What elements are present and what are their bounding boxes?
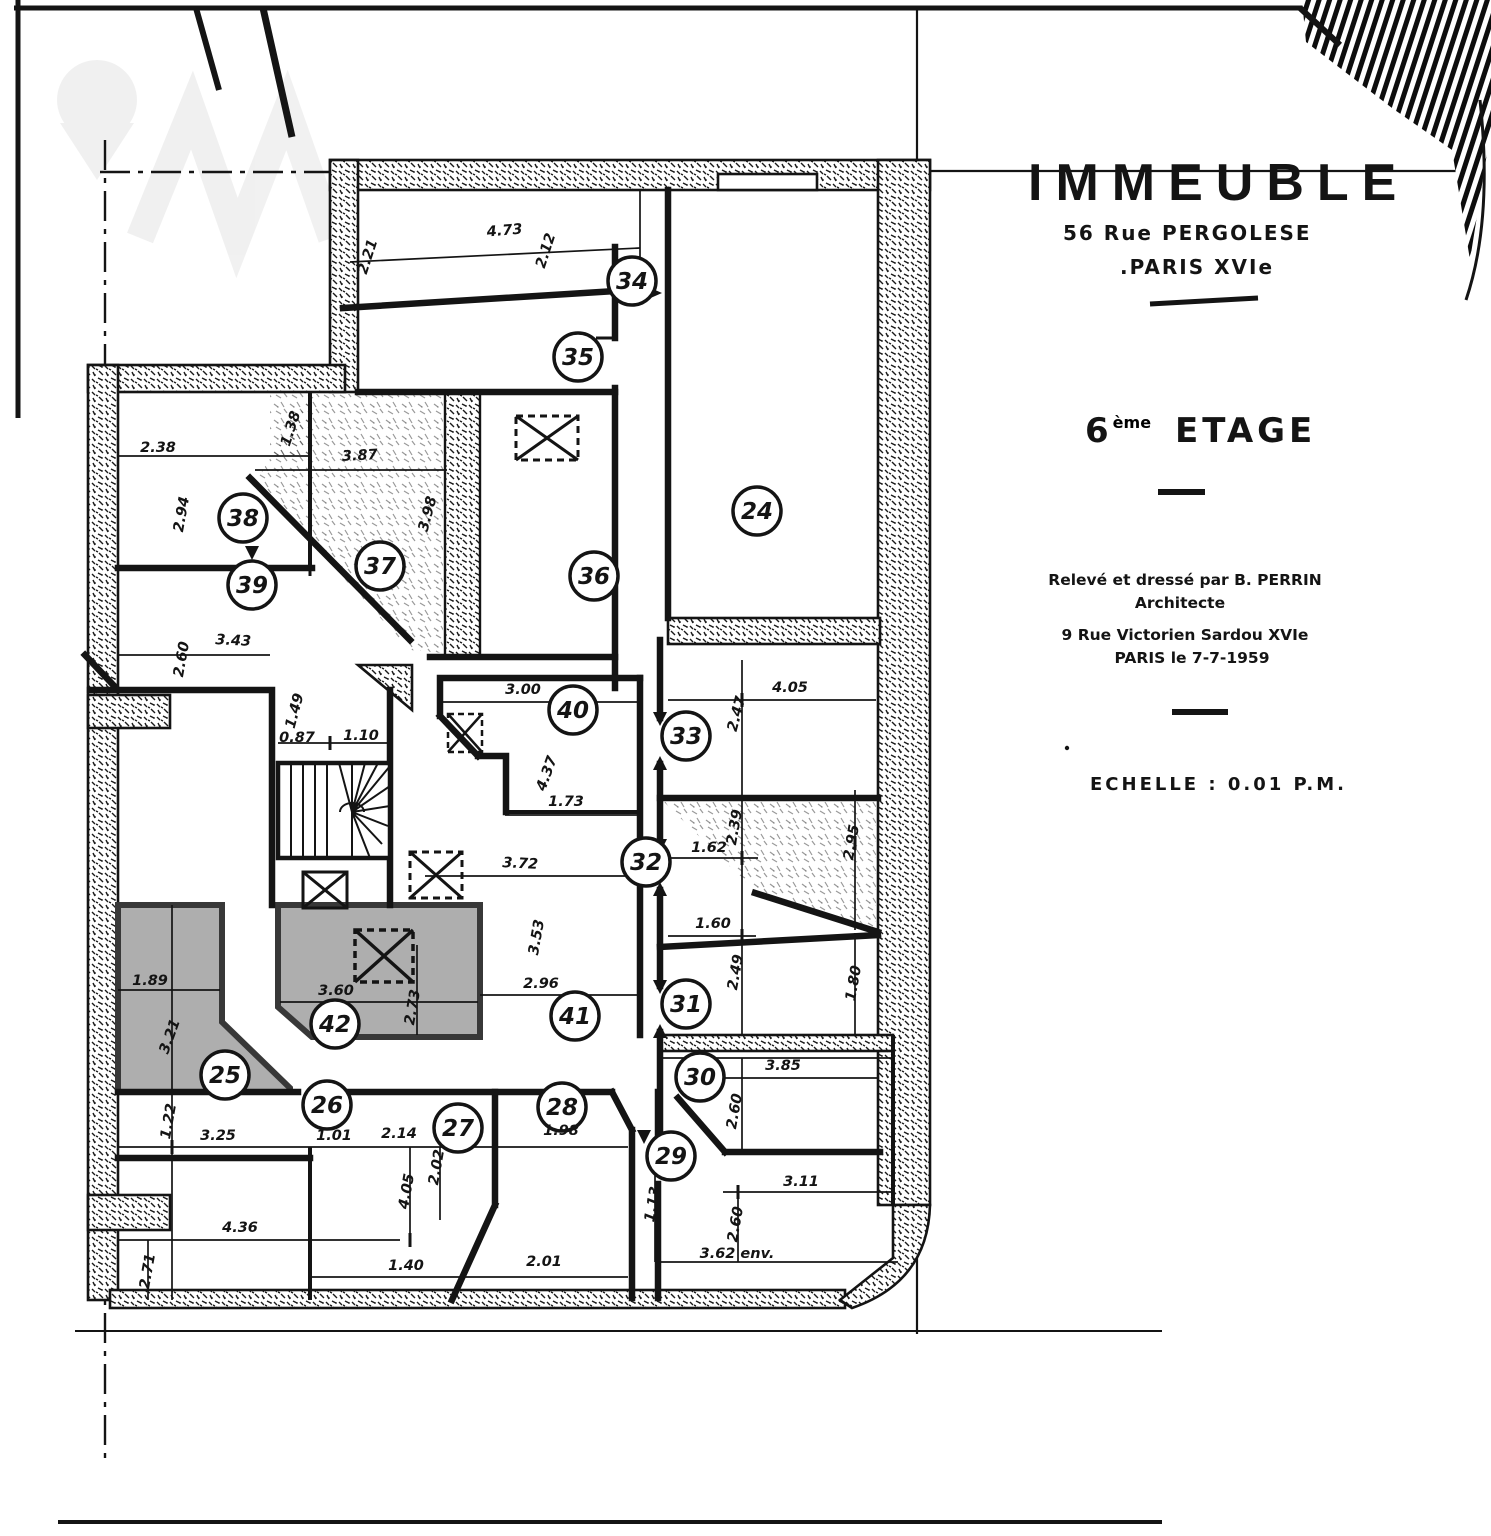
dimension-label: 2.94 bbox=[171, 495, 193, 533]
dimension-label: 1.22 bbox=[158, 1102, 180, 1140]
dimension-label: 3.85 bbox=[765, 1058, 801, 1074]
dimension-label: 3.87 bbox=[342, 447, 379, 465]
room-number: 35 bbox=[562, 345, 594, 371]
dimension-label: 2.60 bbox=[171, 640, 193, 678]
room-number: 39 bbox=[236, 573, 268, 599]
room-marker-39: 39 bbox=[228, 561, 276, 609]
dimension-label: 4.37 bbox=[533, 753, 561, 794]
address-line-2: .PARIS XVIe bbox=[1120, 255, 1274, 279]
room-marker-35: 35 bbox=[554, 333, 602, 381]
dimension-label: 2.60 bbox=[725, 1205, 747, 1243]
door-arrow bbox=[653, 1024, 667, 1038]
underline bbox=[1150, 298, 1258, 304]
dimension-label: 4.36 bbox=[221, 1220, 258, 1236]
dimension-label: 1.98 bbox=[543, 1123, 579, 1139]
room-number: 33 bbox=[670, 724, 702, 750]
room-marker-27: 27 bbox=[434, 1104, 482, 1152]
scan-artifact-top-right bbox=[1300, 0, 1491, 300]
room-number: 42 bbox=[318, 1012, 351, 1038]
room-number: 25 bbox=[209, 1063, 241, 1089]
dimension-label: 4.05 bbox=[396, 1172, 418, 1211]
room-marker-42: 42 bbox=[311, 1000, 359, 1048]
room-marker-24: 24 bbox=[733, 487, 781, 535]
dimension-label: 3.60 bbox=[318, 983, 354, 999]
ink-dot bbox=[1065, 746, 1069, 750]
room-marker-29: 29 bbox=[647, 1132, 695, 1180]
dimension-label: 2.12 bbox=[533, 231, 559, 270]
dimension-label: 3.11 bbox=[783, 1174, 819, 1190]
room-marker-25: 25 bbox=[201, 1051, 249, 1099]
dimension-label: 1.62 bbox=[691, 840, 727, 856]
dimension-label: 2.96 bbox=[523, 976, 559, 992]
room-number: 40 bbox=[556, 698, 589, 724]
room-marker-26: 26 bbox=[303, 1081, 351, 1129]
room-number: 31 bbox=[670, 992, 702, 1018]
room-number: 38 bbox=[227, 506, 259, 532]
dimension-label: 3.62 env. bbox=[700, 1246, 775, 1262]
dimension-label: 2.14 bbox=[381, 1126, 417, 1142]
dimension-label: 2.49 bbox=[725, 953, 747, 991]
dimension-label: 1.40 bbox=[388, 1258, 424, 1274]
room-number: 28 bbox=[546, 1095, 578, 1121]
dimension-label: 1.49 bbox=[283, 692, 308, 731]
credit-line-3: 9 Rue Victorien Sardou XVIe bbox=[1062, 626, 1309, 644]
door-arrow bbox=[637, 1130, 651, 1144]
dimension-label: 2.02 bbox=[426, 1148, 448, 1186]
shaft-box bbox=[410, 852, 462, 898]
scale-label: ECHELLE : 0.01 P.M. bbox=[1090, 774, 1347, 795]
shaft-box bbox=[516, 416, 578, 460]
watermark-logo bbox=[57, 60, 332, 238]
credit-line-4: PARIS le 7-7-1959 bbox=[1115, 649, 1270, 667]
room-number: 27 bbox=[442, 1116, 474, 1142]
blueprint-sheet: 24252627282930313233343536373839404142 4… bbox=[0, 0, 1491, 1536]
room-number: 32 bbox=[630, 850, 662, 876]
room-number: 37 bbox=[364, 554, 396, 580]
dimension-label: 1.80 bbox=[843, 964, 865, 1002]
floor-plan-drawing: 24252627282930313233343536373839404142 4… bbox=[0, 0, 1491, 1536]
room-marker-33: 33 bbox=[662, 712, 710, 760]
dimension-label: 3.43 bbox=[215, 632, 252, 650]
staircase bbox=[278, 763, 390, 858]
sheet-title: IMMEUBLE bbox=[1028, 154, 1409, 212]
room-marker-31: 31 bbox=[662, 980, 710, 1028]
room-marker-38: 38 bbox=[219, 494, 267, 542]
dimension-label: 4.73 bbox=[485, 221, 523, 240]
room-number: 24 bbox=[741, 499, 773, 525]
dimension-label: 1.73 bbox=[548, 794, 584, 810]
room-number: 30 bbox=[684, 1065, 716, 1091]
dimension-label: 3.72 bbox=[502, 855, 539, 873]
dimension-label: 0.87 bbox=[279, 730, 316, 746]
room-number: 29 bbox=[655, 1144, 687, 1170]
address-line-1: 56 Rue PERGOLESE bbox=[1063, 221, 1312, 245]
dimension-label: 1.60 bbox=[695, 916, 731, 932]
dimension-label: 3.00 bbox=[505, 682, 541, 698]
dimension-label: 4.05 bbox=[771, 680, 808, 696]
floor-suffix: ème bbox=[1113, 413, 1152, 432]
dimension-label: 2.71 bbox=[137, 1252, 159, 1290]
room-marker-41: 41 bbox=[551, 992, 599, 1040]
room-marker-30: 30 bbox=[676, 1053, 724, 1101]
door-arrow bbox=[653, 756, 667, 770]
dimension-label: 1.89 bbox=[132, 973, 168, 989]
dimension-label: 2.01 bbox=[526, 1254, 562, 1270]
floor-number: 6 bbox=[1085, 411, 1113, 451]
room-marker-32: 32 bbox=[622, 838, 670, 886]
door-arrow bbox=[245, 546, 259, 560]
dimension-label: 3.25 bbox=[200, 1128, 236, 1144]
title-block: IMMEUBLE 56 Rue PERGOLESE .PARIS XVIe 6è… bbox=[1028, 154, 1409, 795]
dimension-label: 1.01 bbox=[316, 1128, 352, 1144]
room-marker-34: 34 bbox=[608, 257, 656, 305]
room-marker-37: 37 bbox=[356, 542, 404, 590]
dimension-label: 2.38 bbox=[140, 440, 176, 456]
dimension-label: 1.10 bbox=[343, 728, 379, 744]
credit-line-2: Architecte bbox=[1135, 594, 1225, 612]
floor-word: ETAGE bbox=[1175, 411, 1316, 451]
room-marker-40: 40 bbox=[549, 686, 597, 734]
room-number: 41 bbox=[558, 1004, 591, 1030]
room-number: 34 bbox=[616, 269, 648, 295]
room-marker-36: 36 bbox=[570, 552, 618, 600]
credit-line-1: Relevé et dressé par B. PERRIN bbox=[1048, 571, 1321, 589]
room-number: 36 bbox=[578, 564, 610, 590]
highlighted-room-42 bbox=[278, 905, 480, 1037]
dimension-label: 3.53 bbox=[526, 918, 548, 956]
floor-title: 6èmeETAGE bbox=[1085, 411, 1316, 451]
room-number: 26 bbox=[311, 1093, 343, 1119]
